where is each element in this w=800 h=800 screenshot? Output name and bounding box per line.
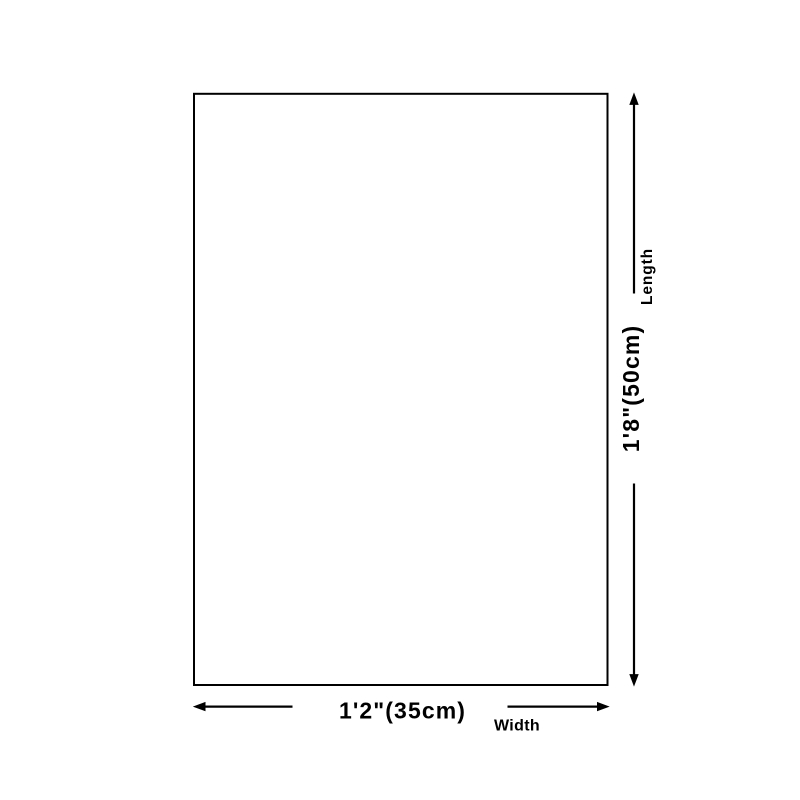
svg-text:1'8"(50cm): 1'8"(50cm)	[618, 325, 644, 453]
svg-text:Width: Width	[494, 717, 540, 734]
svg-text:1'2"(35cm): 1'2"(35cm)	[339, 697, 466, 723]
svg-text:Length: Length	[639, 248, 656, 305]
